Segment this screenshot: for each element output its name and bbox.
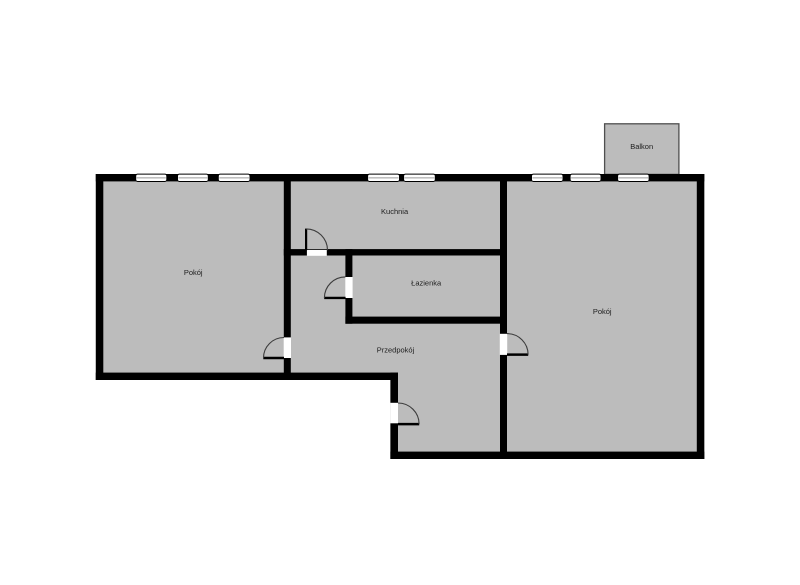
svg-text:Łazienka: Łazienka (411, 279, 442, 288)
svg-text:Przedpokój: Przedpokój (377, 346, 415, 355)
svg-text:Balkon: Balkon (630, 142, 653, 151)
svg-text:Pokój: Pokój (593, 307, 612, 316)
svg-text:Kuchnia: Kuchnia (381, 207, 409, 216)
svg-text:Pokój: Pokój (184, 268, 203, 277)
